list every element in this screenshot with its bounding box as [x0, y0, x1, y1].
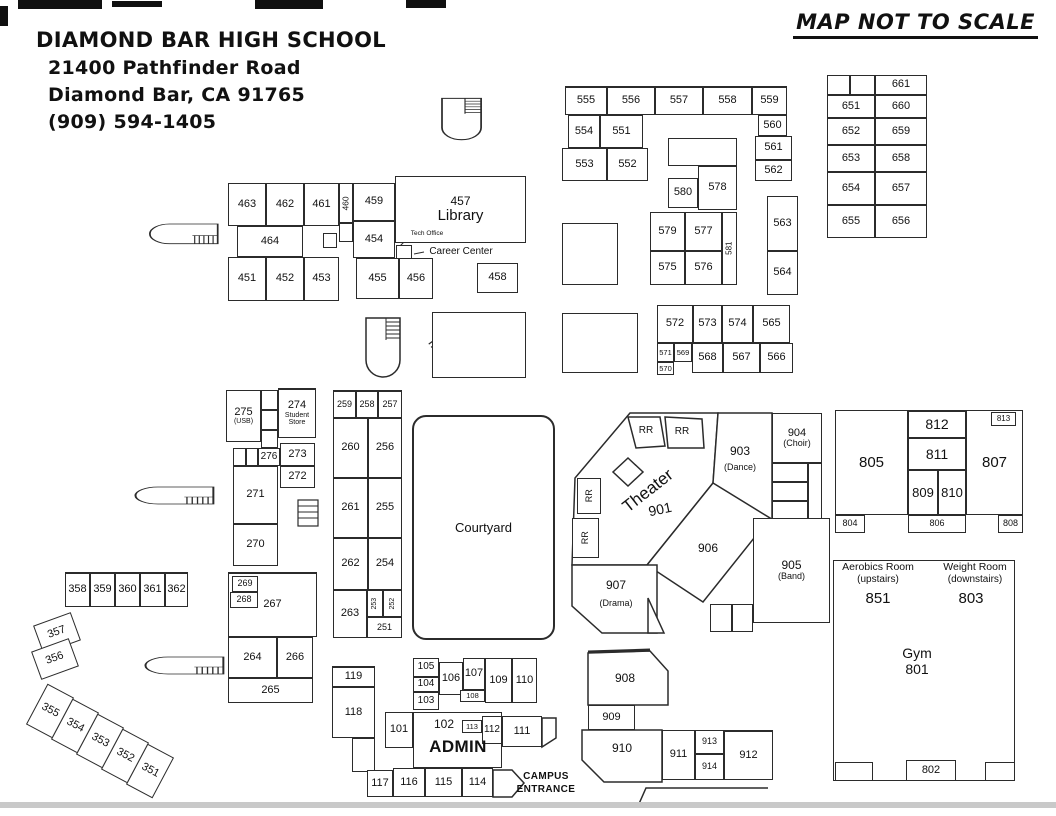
room-label: 105 — [418, 662, 435, 673]
room-label: 454 — [365, 234, 383, 246]
room-label: 354 — [64, 717, 86, 736]
room-251: 251 — [367, 617, 402, 638]
room-910-label: 910 — [600, 740, 644, 756]
room-label: 253 — [371, 598, 378, 610]
room-575: 575 — [650, 251, 685, 285]
cell-276-a — [233, 448, 246, 466]
scan-marks — [0, 0, 446, 26]
room-271: 271 — [233, 466, 278, 524]
room-label: 851 — [865, 591, 890, 607]
room-label: (upstairs) — [857, 575, 899, 586]
room-label: 557 — [670, 95, 688, 107]
room-660: 660 — [875, 95, 927, 118]
room-104: 104 — [413, 677, 439, 692]
room-805: 805 — [835, 410, 908, 515]
room-label: 359 — [93, 584, 111, 596]
room-564: 564 — [767, 251, 798, 295]
room-360: 360 — [115, 572, 140, 607]
tech-office-label: Tech Office — [400, 230, 454, 239]
room-560: 560 — [758, 115, 787, 136]
room-label: 654 — [842, 183, 860, 195]
room-453: 453 — [304, 257, 339, 301]
room-359: 359 — [90, 572, 115, 607]
room-label: 106 — [442, 673, 460, 685]
room-913: 913 — [695, 730, 724, 754]
room-label: 566 — [767, 352, 785, 364]
room-806: 806 — [908, 515, 966, 533]
room-912: 912 — [724, 730, 773, 780]
room-label: 913 — [702, 737, 717, 746]
room-576: 576 — [685, 251, 722, 285]
room-258: 258 — [356, 390, 378, 418]
room-label: RR — [675, 427, 689, 438]
room-905-band: 905(Band) — [753, 518, 830, 623]
room-580: 580 — [668, 178, 698, 208]
room-label: 464 — [261, 236, 279, 248]
room-label: 452 — [276, 273, 294, 285]
room-label: 555 — [577, 95, 595, 107]
room-275: 275(USB) — [226, 390, 261, 442]
room-label: 656 — [892, 216, 910, 228]
room-813: 813 — [991, 412, 1016, 426]
room-568: 568 — [692, 343, 723, 373]
room-label: 462 — [276, 199, 294, 211]
room-906-label: 906 — [688, 540, 728, 556]
room-654: 654 — [827, 172, 875, 205]
room-label: 564 — [773, 267, 791, 279]
room-label: 114 — [469, 777, 487, 789]
room-label: 275 — [234, 407, 252, 419]
room-label: 101 — [390, 724, 408, 736]
room-111: 111 — [502, 716, 542, 747]
campus-entrance-label: ENTRANCE — [514, 785, 578, 796]
room-label: Gym — [902, 646, 932, 661]
room-label: 809 — [912, 486, 934, 500]
room-label: 653 — [842, 153, 860, 165]
room-268: 268 — [230, 592, 258, 608]
room-263: 263 — [333, 590, 367, 638]
room-114: 114 — [462, 768, 493, 797]
cell-600-a — [827, 75, 850, 95]
room-label: 580 — [674, 187, 692, 199]
room-578: 578 — [698, 166, 737, 210]
restroom-label: RR — [632, 424, 660, 438]
room-label: 801 — [905, 662, 928, 677]
room-557: 557 — [655, 86, 703, 115]
room-103: 103 — [413, 692, 439, 710]
campus-map: DIAMOND BAR HIGH SCHOOL 21400 Pathfinder… — [0, 0, 1056, 816]
downstairs-label: (downstairs) — [938, 574, 1012, 586]
map-not-to-scale-note: MAP NOT TO SCALE — [793, 10, 1038, 39]
room-label: 254 — [376, 558, 394, 570]
room-label: 258 — [359, 400, 374, 409]
room-label: 574 — [728, 318, 746, 330]
map-header: DIAMOND BAR HIGH SCHOOL 21400 Pathfinder… — [36, 28, 386, 133]
room-label: 912 — [739, 750, 757, 762]
room-454: 454 — [353, 221, 395, 258]
room-556: 556 — [607, 86, 655, 115]
room-270: 270 — [233, 524, 278, 566]
room-801-label: 801 — [896, 661, 938, 677]
room-label: 579 — [658, 226, 676, 238]
room-label: 261 — [341, 502, 359, 514]
room-label: RR — [639, 426, 653, 437]
room-256: 256 — [368, 418, 402, 478]
room-655: 655 — [827, 205, 875, 238]
room-label: 572 — [666, 318, 684, 330]
room-label: 903 — [730, 445, 750, 458]
room-254: 254 — [368, 538, 402, 590]
room-label: (Dance) — [724, 463, 756, 472]
room-label: 112 — [484, 725, 500, 736]
room-label: 658 — [892, 153, 910, 165]
room-label: 907 — [606, 579, 626, 592]
room-570: 570 — [657, 362, 674, 375]
room-label: 460 — [342, 196, 351, 210]
room-label: 459 — [365, 196, 383, 208]
drama-label: (Drama) — [588, 598, 644, 610]
career-center-label: Career Center — [420, 247, 502, 258]
room-label: Weight Room — [943, 562, 1006, 573]
room-label: 268 — [236, 595, 251, 604]
room-573: 573 — [693, 305, 722, 343]
room-label: 810 — [941, 486, 963, 500]
room-label: 651 — [842, 101, 860, 113]
room-904-choir: 904(Choir) — [772, 413, 822, 463]
school-address-line1: 21400 Pathfinder Road — [48, 57, 386, 79]
room-652: 652 — [827, 118, 875, 145]
room-label: 107 — [465, 668, 483, 680]
school-phone: (909) 594-1405 — [48, 111, 386, 133]
room-555: 555 — [565, 86, 607, 115]
room-label: 914 — [702, 762, 717, 771]
admin-label: ADMIN — [416, 736, 500, 758]
room-label: 273 — [288, 449, 306, 461]
room-911: 911 — [662, 730, 695, 780]
room-label: 806 — [929, 519, 944, 528]
room-657: 657 — [875, 172, 927, 205]
room-102-label: 102 — [428, 716, 460, 732]
room-579: 579 — [650, 212, 685, 251]
room-label: 461 — [312, 199, 330, 211]
room-label: 558 — [718, 95, 736, 107]
room-565: 565 — [753, 305, 790, 343]
room-851-label: 851 — [856, 590, 900, 608]
room-452: 452 — [266, 257, 304, 301]
room-110: 110 — [512, 658, 537, 703]
room-label: 812 — [925, 417, 948, 432]
room-label: 554 — [575, 126, 593, 138]
room-label: 803 — [958, 591, 983, 607]
room-661: 661 — [875, 75, 927, 95]
room-811: 811 — [908, 438, 966, 470]
room-462: 462 — [266, 183, 304, 226]
room-117: 117 — [367, 770, 393, 797]
room-907-label: 907 — [592, 578, 640, 593]
room-label: 360 — [118, 584, 136, 596]
room-658: 658 — [875, 145, 927, 172]
room-456: 456 — [399, 258, 433, 299]
room-sublabel: Student Store — [279, 412, 315, 427]
room-label: 802 — [922, 765, 940, 777]
room-label: 361 — [143, 584, 161, 596]
room-571: 571 — [657, 343, 674, 362]
room-label: ADMIN — [429, 738, 487, 756]
cell-274-a — [261, 390, 278, 410]
room-105: 105 — [413, 658, 439, 677]
room-567: 567 — [723, 343, 760, 373]
room-118: 118 — [332, 687, 375, 738]
cell-460-annex — [339, 223, 353, 242]
room-label: 104 — [418, 679, 435, 690]
room-460: 460 — [339, 183, 353, 223]
building-578-upper — [668, 138, 737, 166]
room-569: 569 — [674, 343, 692, 362]
room-659: 659 — [875, 118, 927, 145]
room-label: 276 — [261, 452, 278, 463]
room-label: 661 — [892, 79, 910, 91]
room-label: ENTRANCE — [517, 785, 576, 796]
room-914: 914 — [695, 754, 724, 780]
room-label: 111 — [514, 726, 531, 738]
cell-464-annex — [323, 233, 337, 248]
room-sublabel: (Band) — [778, 572, 805, 581]
room-label: 455 — [368, 273, 386, 285]
room-558: 558 — [703, 86, 752, 115]
room-903-label: 903 — [718, 444, 762, 458]
room-label: 901 — [647, 499, 673, 518]
room-label: 570 — [659, 365, 672, 373]
cell-theater-b — [732, 604, 753, 632]
room-451: 451 — [228, 257, 266, 301]
room-262: 262 — [333, 538, 368, 590]
room-358: 358 — [65, 572, 90, 607]
room-459: 459 — [353, 183, 395, 221]
room-label: 561 — [764, 142, 782, 154]
room-803-label: 803 — [948, 590, 994, 608]
room-257: 257 — [378, 390, 402, 418]
room-909: 909 — [588, 705, 635, 730]
room-551: 551 — [600, 115, 643, 148]
amphitheater-box — [432, 312, 526, 378]
room-label: RR — [584, 490, 593, 503]
room-574: 574 — [722, 305, 753, 343]
room-label: 109 — [489, 675, 507, 687]
room-label: 578 — [708, 182, 726, 194]
room-label: 251 — [377, 623, 392, 632]
cell-904-a — [772, 463, 808, 482]
room-label: 652 — [842, 126, 860, 138]
room-809: 809 — [908, 470, 938, 515]
room-label: 115 — [435, 777, 453, 789]
room-label: 458 — [488, 272, 506, 284]
room-908-label: 908 — [605, 670, 645, 686]
room-label: 811 — [926, 447, 948, 462]
room-276: 276 — [258, 448, 280, 466]
room-label: 453 — [312, 273, 330, 285]
room-label: 108 — [466, 692, 479, 700]
cell-904-d — [808, 463, 822, 520]
room-label: RR — [581, 532, 590, 545]
scan-bottom-bar — [0, 802, 1056, 808]
room-label: 805 — [859, 455, 884, 471]
courtyard: Courtyard — [412, 415, 555, 640]
room-label: Courtyard — [455, 521, 512, 535]
room-label: 269 — [237, 579, 252, 588]
room-461: 461 — [304, 183, 339, 226]
room-label: (downstairs) — [948, 575, 1002, 586]
room-label: 274 — [288, 400, 306, 412]
room-label: 655 — [842, 216, 860, 228]
room-label: 265 — [261, 685, 279, 697]
room-label: 906 — [698, 542, 718, 555]
room-651: 651 — [827, 95, 875, 118]
room-label: 560 — [763, 120, 781, 132]
room-577: 577 — [685, 212, 722, 251]
room-563: 563 — [767, 196, 798, 251]
room-label: 266 — [286, 652, 304, 664]
room-label: 102 — [434, 718, 454, 731]
cell-274-b — [261, 410, 278, 430]
room-label: 270 — [246, 539, 264, 551]
room-115: 115 — [425, 768, 462, 797]
room-572: 572 — [657, 305, 693, 343]
room-553: 553 — [562, 148, 607, 181]
room-361: 361 — [140, 572, 165, 607]
room-label: 113 — [466, 723, 478, 731]
school-address-line2: Diamond Bar, CA 91765 — [48, 84, 386, 106]
room-label: 118 — [345, 707, 363, 719]
room-561: 561 — [755, 136, 792, 160]
room-812: 812 — [908, 410, 966, 438]
room-label: 110 — [516, 675, 534, 687]
room-label: 255 — [376, 502, 394, 514]
room-label: 911 — [670, 749, 688, 761]
room-label: 352 — [114, 747, 136, 766]
restroom-label: RR — [668, 425, 696, 439]
room-label: 355 — [39, 702, 61, 721]
room-label: 260 — [341, 442, 359, 454]
room-label: 660 — [892, 101, 910, 113]
room-566: 566 — [760, 343, 793, 373]
room-label: 909 — [602, 712, 620, 724]
room-260: 260 — [333, 418, 368, 478]
room-label: 659 — [892, 126, 910, 138]
room-label: 807 — [982, 455, 1007, 471]
room-label: 264 — [243, 652, 261, 664]
room-label: 562 — [764, 165, 782, 177]
upstairs-label: (upstairs) — [846, 574, 910, 586]
room-label: 563 — [773, 218, 791, 230]
room-562: 562 — [755, 160, 792, 181]
weight-room-label: Weight Room — [936, 562, 1014, 574]
room-458: 458 — [477, 263, 518, 293]
room-463: 463 — [228, 183, 266, 226]
room-804: 804 — [835, 515, 865, 533]
room-label: 567 — [732, 352, 750, 364]
room-label: 575 — [658, 262, 676, 274]
room-362: 362 — [165, 572, 188, 607]
room-272: 272 — [280, 466, 315, 488]
room-109: 109 — [485, 658, 512, 703]
room-label: 569 — [677, 349, 690, 357]
cell-theater-a — [710, 604, 732, 632]
room-sublabel: (Choir) — [783, 439, 811, 448]
room-581: 581 — [722, 212, 737, 285]
restroom-label: RR — [577, 478, 601, 514]
room-label: 581 — [725, 242, 733, 255]
room-label: 576 — [694, 262, 712, 274]
aerobics-room-label: Aerobics Room — [838, 562, 918, 574]
room-656: 656 — [875, 205, 927, 238]
room-252: 252 — [383, 590, 402, 617]
room-label: 119 — [345, 671, 363, 683]
room-label: 272 — [288, 471, 306, 483]
room-269: 269 — [232, 576, 258, 592]
room-label: 353 — [89, 732, 111, 751]
room-554: 554 — [568, 115, 600, 148]
room-273: 273 — [280, 443, 315, 466]
dance-label: (Dance) — [712, 462, 768, 474]
room-label: 358 — [68, 584, 86, 596]
room-label: 804 — [842, 519, 857, 528]
cell-274-c — [261, 430, 278, 448]
room-label: 356 — [44, 650, 65, 667]
campus-entrance-label: CAMPUS — [518, 772, 574, 783]
room-label: CAMPUS — [523, 772, 569, 783]
room-label: 559 — [760, 95, 778, 107]
room-label: 565 — [762, 318, 780, 330]
room-label: (Drama) — [600, 599, 633, 608]
room-label: 252 — [389, 598, 396, 610]
room-label: 116 — [400, 777, 418, 789]
room-label: 262 — [341, 558, 359, 570]
room-label: 553 — [575, 159, 593, 171]
stairwell-room — [562, 223, 618, 285]
room-label: 577 — [694, 226, 712, 238]
room-label: 657 — [892, 183, 910, 195]
room-266: 266 — [277, 637, 313, 678]
room-sublabel: Library — [438, 208, 484, 224]
room-253: 253 — [367, 590, 383, 617]
gym-annex-right — [985, 762, 1015, 781]
room-label: 256 — [376, 442, 394, 454]
room-label: 571 — [659, 349, 672, 357]
blank-building — [562, 313, 638, 373]
room-116: 116 — [393, 768, 425, 797]
room-label: 117 — [371, 778, 389, 790]
room-label: 552 — [618, 159, 636, 171]
cell-904-b — [772, 482, 808, 501]
tech-office-room — [396, 245, 412, 259]
room-113: 113 — [462, 720, 482, 733]
corridor-118 — [352, 738, 375, 772]
school-name: DIAMOND BAR HIGH SCHOOL — [36, 28, 386, 52]
room-455: 455 — [356, 258, 399, 299]
room-107: 107 — [463, 658, 485, 690]
room-261: 261 — [333, 478, 368, 538]
room-265: 265 — [228, 678, 313, 703]
room-101: 101 — [385, 712, 413, 748]
room-label: 813 — [997, 415, 1010, 423]
room-810: 810 — [938, 470, 966, 515]
room-255: 255 — [368, 478, 402, 538]
room-label: 351 — [139, 762, 161, 781]
gym-annex-left — [835, 762, 873, 781]
room-label: 556 — [622, 95, 640, 107]
room-label: 808 — [1003, 519, 1018, 528]
room-559: 559 — [752, 86, 787, 115]
